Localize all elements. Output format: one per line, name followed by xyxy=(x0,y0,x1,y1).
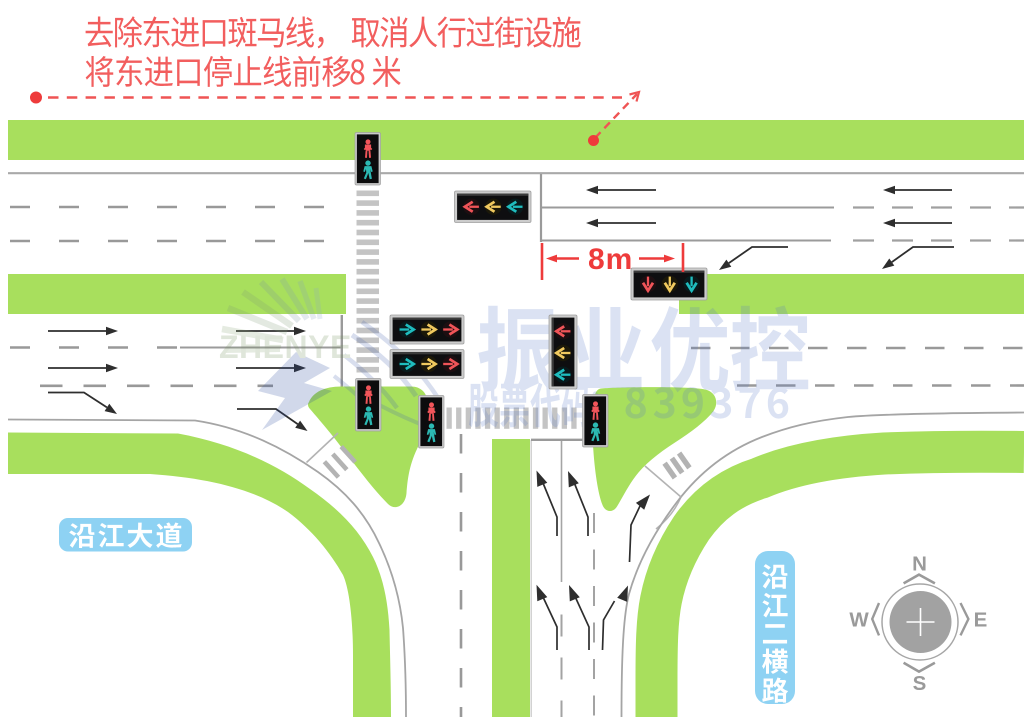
svg-text:8m: 8m xyxy=(588,243,633,276)
svg-text:E: E xyxy=(974,609,988,632)
svg-text:W: W xyxy=(849,609,869,632)
svg-text:N: N xyxy=(912,553,927,576)
svg-text:S: S xyxy=(913,672,927,695)
svg-text:ZHENYE: ZHENYE xyxy=(219,329,352,365)
